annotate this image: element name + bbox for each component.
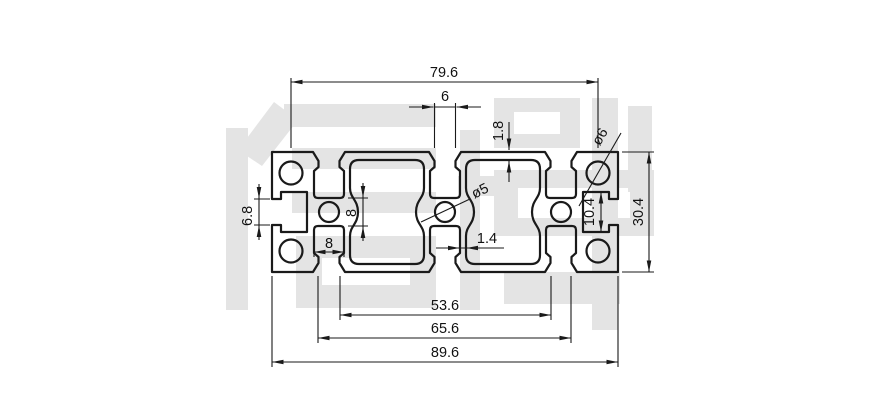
corner-hole-top-left <box>280 162 303 185</box>
dim-web-pocket-height-text: 8 <box>344 209 360 217</box>
drawing-page: 79.6 6 1.8 ø6 30.4 10.4 <box>0 0 880 420</box>
dim-slot-opening-text: 6 <box>441 89 449 105</box>
watermark-stroke <box>628 106 652 192</box>
technical-drawing-canvas: 79.6 6 1.8 ø6 30.4 10.4 <box>0 0 880 420</box>
dim-side-slot-opening-text: 6.8 <box>240 206 256 226</box>
watermark-stroke <box>460 130 480 310</box>
watermark-counter <box>514 112 560 134</box>
watermark-stroke <box>504 272 620 304</box>
web-hole-center <box>435 202 455 222</box>
dim-rib-thickness-text: 1.4 <box>477 231 497 247</box>
dim-inner-span-text: 53.6 <box>431 298 459 314</box>
dim-overall-height-text: 30.4 <box>631 198 647 226</box>
dim-slot-span-text: 65.6 <box>431 321 459 337</box>
dim-hole-pitch-text: 79.6 <box>430 65 458 81</box>
dim-side-pocket-height-text: 10.4 <box>582 198 598 226</box>
dim-overall-width-text: 89.6 <box>431 345 459 361</box>
dim-bottom-pocket-width-text: 8 <box>325 236 333 252</box>
dim-top-wall-text: 1.8 <box>491 121 507 141</box>
